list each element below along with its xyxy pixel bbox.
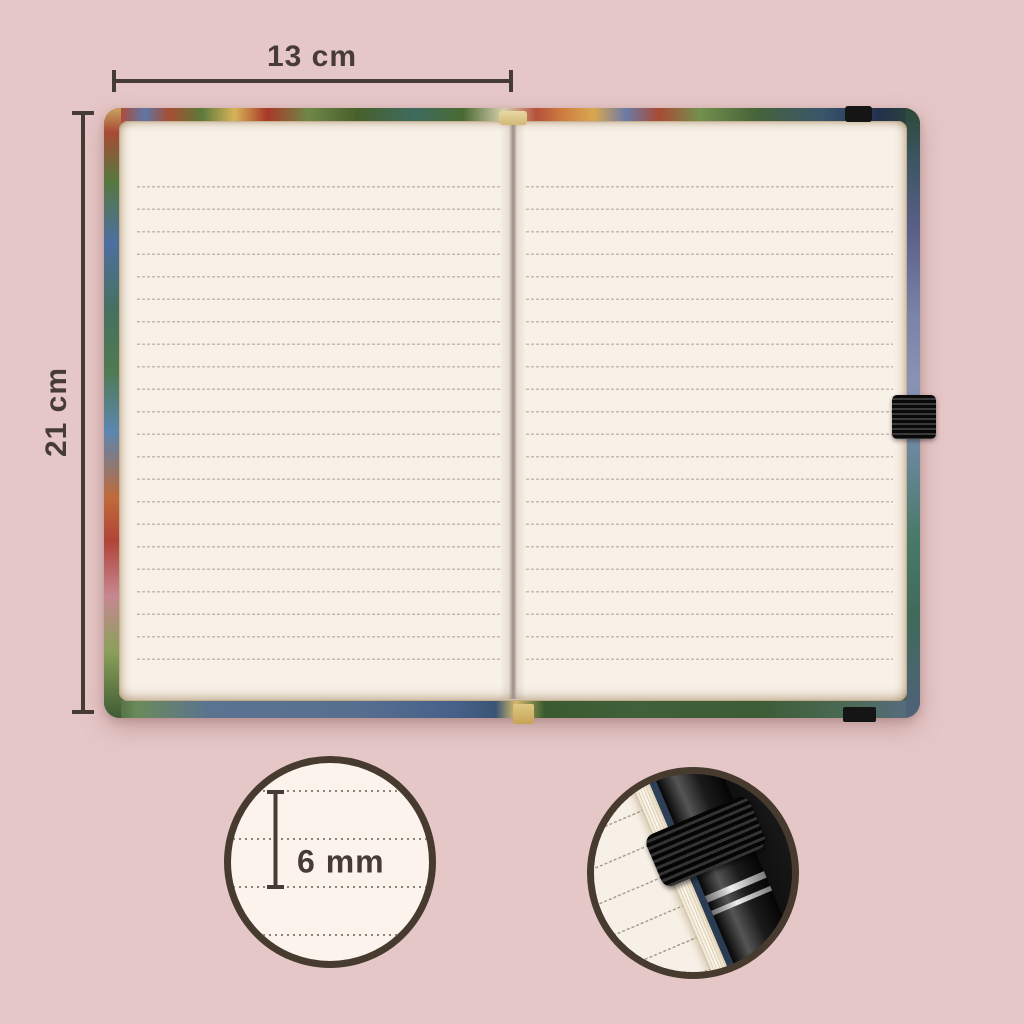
dotted-rule-line: [233, 838, 427, 840]
width-measurement-label: 13 cm: [112, 40, 512, 74]
left-page-ruled-lines: [135, 165, 502, 681]
ruling-spacing-callout: 6 mm: [224, 756, 436, 968]
dotted-rule-line: [233, 790, 427, 792]
product-dimension-diagram: 13 cm 21 cm 6 mm: [0, 0, 1024, 1024]
notebook-cover: [104, 108, 920, 718]
closure-band-end: [843, 707, 876, 722]
bookmark-ribbon-top: [499, 111, 527, 125]
notebook-pages: [119, 121, 907, 701]
dotted-rule-line: [233, 934, 427, 936]
page-gutter: [500, 123, 526, 699]
spacing-label: 6 mm: [297, 844, 385, 881]
pen-detail-scene: [587, 767, 799, 979]
height-measurement-line: [81, 111, 85, 714]
cover-edge-bottom: [104, 700, 920, 718]
spacing-bracket: [267, 790, 284, 889]
pen-loop-elastic: [892, 395, 936, 439]
open-notebook: [104, 108, 920, 718]
elastic-band-top-end: [845, 106, 872, 122]
pen-loop-callout: [587, 767, 799, 979]
right-page-ruled-lines: [524, 165, 893, 681]
bookmark-ribbon-end: [513, 704, 534, 724]
dotted-rule-line: [233, 886, 427, 888]
width-measurement-line: [112, 79, 513, 83]
height-measurement-label: 21 cm: [40, 367, 74, 457]
